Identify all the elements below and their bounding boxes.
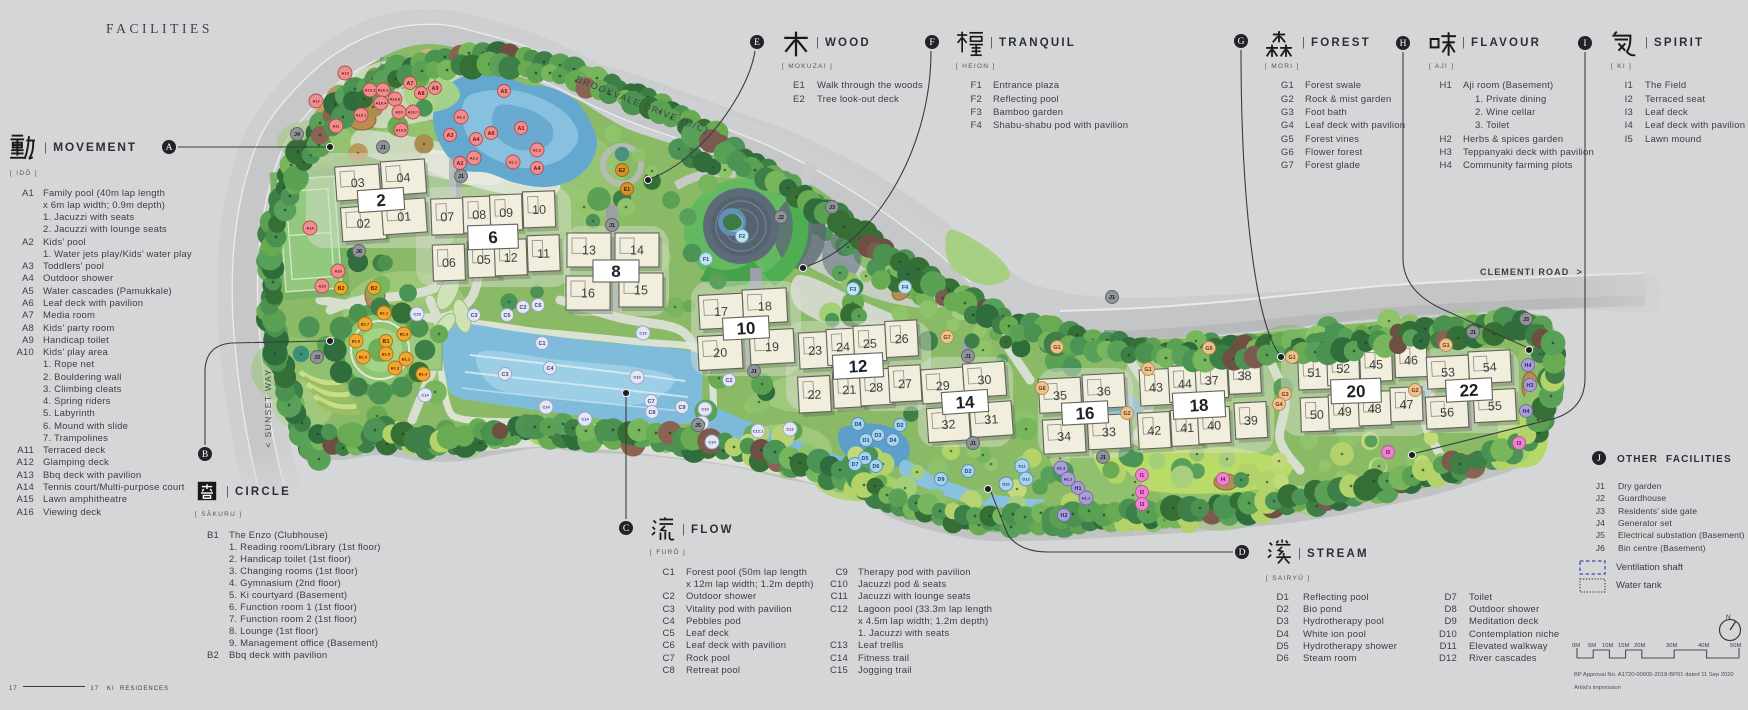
- svg-text:G7: G7: [943, 335, 950, 341]
- svg-text:A12: A12: [312, 98, 320, 103]
- svg-text:18: 18: [1189, 396, 1209, 416]
- svg-text:16: 16: [581, 287, 595, 301]
- svg-text:34: 34: [1057, 429, 1072, 444]
- svg-text:F1: F1: [703, 257, 709, 263]
- svg-text:B1: B1: [383, 339, 390, 345]
- svg-text:37: 37: [1204, 373, 1219, 388]
- svg-text:05: 05: [477, 253, 491, 267]
- svg-text:G1: G1: [1053, 345, 1060, 351]
- svg-text:C14: C14: [708, 439, 716, 444]
- svg-text:J1: J1: [751, 369, 757, 375]
- svg-text:C15: C15: [413, 311, 421, 316]
- svg-text:18: 18: [758, 299, 773, 314]
- svg-text:C4: C4: [547, 366, 554, 372]
- svg-text:44: 44: [1178, 377, 1193, 392]
- svg-text:03: 03: [350, 176, 365, 191]
- svg-text:25: 25: [863, 336, 878, 351]
- svg-text:H: H: [1400, 39, 1407, 49]
- svg-text:17: 17: [714, 304, 729, 319]
- svg-text:D11: D11: [1018, 463, 1026, 468]
- svg-text:48: 48: [1367, 402, 1381, 416]
- svg-text:A16: A16: [334, 268, 342, 273]
- svg-text:J3: J3: [1523, 317, 1529, 323]
- svg-text:A1: A1: [518, 126, 525, 132]
- svg-text:C14: C14: [421, 392, 429, 397]
- svg-text:C2: C2: [520, 305, 527, 311]
- svg-text:B1.5: B1.5: [382, 351, 391, 356]
- svg-text:22: 22: [1459, 381, 1479, 401]
- svg-text:J2: J2: [778, 215, 784, 221]
- svg-text:D12: D12: [1022, 476, 1030, 481]
- svg-text:C9: C9: [679, 405, 686, 411]
- svg-text:C1: C1: [539, 341, 546, 347]
- svg-text:C: C: [623, 524, 629, 534]
- svg-text:29: 29: [935, 379, 950, 394]
- svg-text:A6: A6: [488, 131, 495, 137]
- svg-text:A8: A8: [418, 91, 425, 97]
- svg-text:C10: C10: [701, 406, 709, 411]
- svg-text:J1: J1: [1470, 330, 1476, 336]
- svg-text:B1.2: B1.2: [402, 356, 411, 361]
- svg-text:J1: J1: [965, 354, 971, 360]
- svg-text:H1.3: H1.3: [1057, 465, 1066, 470]
- svg-text:E: E: [754, 38, 760, 48]
- svg-text:H1.2: H1.2: [1064, 476, 1073, 481]
- svg-text:2: 2: [376, 191, 387, 211]
- svg-text:D4: D4: [890, 438, 897, 444]
- svg-text:A10.6: A10.6: [390, 96, 401, 101]
- svg-text:A2: A2: [457, 161, 464, 167]
- svg-text:42: 42: [1147, 424, 1162, 439]
- svg-text:J5: J5: [695, 423, 701, 429]
- svg-text:30: 30: [977, 373, 992, 388]
- svg-text:D8: D8: [855, 422, 862, 428]
- svg-text:D2: D2: [965, 469, 972, 475]
- svg-text:07: 07: [440, 210, 454, 224]
- svg-text:D3: D3: [875, 433, 882, 439]
- svg-text:E2: E2: [619, 168, 626, 174]
- svg-text:I3: I3: [1140, 502, 1145, 508]
- svg-text:G1: G1: [1144, 367, 1151, 373]
- svg-text:D10: D10: [1002, 481, 1010, 486]
- svg-text:C3: C3: [471, 313, 478, 319]
- svg-text:B1.6: B1.6: [352, 338, 361, 343]
- svg-text:C12.1: C12.1: [753, 428, 764, 433]
- svg-text:A9: A9: [432, 86, 439, 92]
- svg-text:G2: G2: [1123, 411, 1130, 417]
- svg-text:8: 8: [611, 262, 620, 281]
- svg-text:22: 22: [807, 387, 822, 402]
- svg-text:32: 32: [941, 417, 956, 432]
- svg-text:39: 39: [1244, 413, 1259, 428]
- svg-text:H1.1: H1.1: [1082, 495, 1091, 500]
- svg-text:C13: C13: [639, 330, 647, 335]
- svg-text:10: 10: [532, 203, 546, 217]
- svg-text:C6: C6: [535, 303, 542, 309]
- svg-text:C7: C7: [648, 399, 655, 405]
- svg-text:A2.1: A2.1: [470, 155, 479, 160]
- svg-text:B1.3: B1.3: [391, 365, 400, 370]
- svg-text:A13: A13: [341, 70, 349, 75]
- svg-text:C8: C8: [649, 410, 656, 416]
- svg-text:G2: G2: [1411, 388, 1418, 394]
- svg-text:04: 04: [396, 170, 411, 185]
- svg-text:J3: J3: [829, 205, 835, 211]
- svg-text:D1: D1: [863, 438, 870, 444]
- svg-text:C14: C14: [542, 404, 550, 409]
- svg-text:A4: A4: [473, 137, 480, 143]
- svg-text:12: 12: [848, 357, 868, 377]
- svg-text:6: 6: [488, 228, 498, 247]
- svg-text:A15: A15: [318, 283, 326, 288]
- svg-text:D5: D5: [862, 456, 869, 462]
- svg-text:D7: D7: [852, 462, 859, 468]
- svg-text:A10.2: A10.2: [365, 87, 376, 92]
- svg-text:36: 36: [1097, 384, 1112, 399]
- svg-text:02: 02: [356, 216, 371, 231]
- svg-text:D9: D9: [938, 477, 945, 483]
- svg-text:A10: A10: [395, 109, 403, 114]
- svg-text:B: B: [202, 450, 208, 460]
- svg-text:A10.1: A10.1: [356, 112, 367, 117]
- svg-text:A: A: [166, 143, 173, 153]
- svg-text:B2: B2: [338, 286, 345, 292]
- svg-text:01: 01: [397, 209, 412, 224]
- svg-text:52: 52: [1336, 362, 1350, 376]
- svg-text:06: 06: [442, 256, 456, 270]
- svg-text:J3: J3: [314, 355, 320, 361]
- svg-text:F: F: [929, 38, 934, 48]
- svg-text:23: 23: [808, 343, 823, 358]
- svg-text:50: 50: [1310, 408, 1324, 422]
- svg-text:A10.4: A10.4: [376, 100, 387, 105]
- svg-text:G4: G4: [1275, 402, 1282, 408]
- svg-text:B1.4: B1.4: [419, 371, 428, 376]
- svg-text:G: G: [1238, 37, 1245, 47]
- svg-text:N: N: [1726, 614, 1731, 621]
- svg-text:G3: G3: [1281, 392, 1288, 398]
- svg-text:I: I: [1583, 39, 1586, 49]
- svg-text:C12: C12: [786, 426, 794, 431]
- svg-text:H4: H4: [1525, 363, 1532, 369]
- svg-text:11: 11: [537, 247, 551, 261]
- svg-text:31: 31: [984, 412, 999, 427]
- svg-text:F4: F4: [902, 285, 908, 291]
- svg-text:G1: G1: [1442, 343, 1449, 349]
- svg-text:A5: A5: [501, 89, 508, 95]
- svg-text:16: 16: [1075, 404, 1095, 424]
- svg-text:J4: J4: [294, 132, 300, 138]
- svg-text:35: 35: [1053, 388, 1068, 403]
- svg-text:< SUNSET WAY: < SUNSET WAY: [263, 368, 273, 447]
- svg-text:45: 45: [1369, 358, 1383, 372]
- svg-text:H2: H2: [1061, 513, 1068, 519]
- svg-text:C14: C14: [581, 416, 589, 421]
- svg-text:A3: A3: [447, 133, 454, 139]
- svg-text:E1: E1: [624, 187, 631, 193]
- svg-text:C10: C10: [633, 374, 641, 379]
- svg-text:D6: D6: [873, 464, 880, 470]
- svg-text:C2: C2: [726, 378, 733, 384]
- svg-text:15: 15: [634, 284, 648, 298]
- svg-text:56: 56: [1440, 405, 1455, 420]
- svg-text:D2: D2: [897, 423, 904, 429]
- svg-text:21: 21: [842, 383, 857, 398]
- svg-text:J1: J1: [458, 174, 464, 180]
- svg-text:C3: C3: [502, 372, 509, 378]
- svg-text:I5: I5: [1386, 450, 1391, 456]
- svg-text:A1.2: A1.2: [533, 147, 542, 152]
- svg-text:A14: A14: [306, 225, 314, 230]
- svg-text:43: 43: [1149, 380, 1164, 395]
- svg-text:J6: J6: [356, 249, 362, 255]
- svg-text:14: 14: [630, 244, 644, 258]
- svg-text:I1: I1: [1140, 473, 1145, 479]
- svg-text:55: 55: [1488, 399, 1503, 414]
- svg-text:J1: J1: [609, 223, 615, 229]
- svg-text:H3: H3: [1527, 383, 1534, 389]
- svg-text:B1.7: B1.7: [361, 321, 370, 326]
- svg-text:I3: I3: [1517, 441, 1522, 447]
- svg-text:A10.7: A10.7: [408, 109, 419, 114]
- svg-text:H4: H4: [1523, 409, 1530, 415]
- svg-text:I2: I2: [1140, 490, 1145, 496]
- svg-text:24: 24: [836, 340, 851, 355]
- svg-text:54: 54: [1483, 360, 1498, 375]
- svg-text:14: 14: [955, 392, 976, 412]
- svg-text:33: 33: [1102, 425, 1117, 440]
- svg-text:B1.1: B1.1: [380, 310, 389, 315]
- svg-text:51: 51: [1307, 366, 1321, 380]
- svg-text:28: 28: [869, 380, 884, 395]
- svg-text:J1: J1: [380, 145, 386, 151]
- svg-text:B1.8: B1.8: [400, 331, 409, 336]
- svg-text:I4: I4: [1221, 477, 1226, 483]
- svg-text:G1: G1: [1288, 355, 1295, 361]
- svg-text:A7: A7: [407, 81, 414, 87]
- svg-text:53: 53: [1441, 365, 1456, 380]
- svg-text:38: 38: [1237, 369, 1252, 384]
- svg-text:A10.3: A10.3: [378, 87, 389, 92]
- svg-text:46: 46: [1404, 353, 1418, 367]
- svg-text:J1: J1: [1109, 295, 1115, 301]
- svg-text:G5: G5: [1205, 346, 1212, 352]
- svg-text:20: 20: [1346, 382, 1366, 402]
- svg-text:B2: B2: [371, 286, 378, 292]
- svg-text:40: 40: [1207, 418, 1222, 433]
- svg-text:A1.1: A1.1: [509, 159, 518, 164]
- svg-text:A1.2: A1.2: [457, 114, 466, 119]
- svg-text:20: 20: [713, 346, 728, 361]
- svg-text:C5: C5: [504, 313, 511, 319]
- svg-text:49: 49: [1338, 405, 1352, 419]
- svg-text:B1.9: B1.9: [359, 354, 368, 359]
- svg-text:13: 13: [582, 244, 596, 258]
- svg-text:H1: H1: [1075, 486, 1082, 492]
- svg-text:J: J: [1597, 454, 1601, 464]
- svg-text:12: 12: [504, 251, 518, 265]
- svg-text:A11: A11: [332, 123, 340, 128]
- svg-text:27: 27: [898, 377, 913, 392]
- svg-text:41: 41: [1180, 421, 1195, 436]
- svg-text:G6: G6: [1038, 386, 1045, 392]
- svg-text:10: 10: [736, 319, 756, 339]
- svg-text:J1: J1: [970, 441, 976, 447]
- svg-text:08: 08: [472, 208, 486, 222]
- svg-text:J1: J1: [1100, 455, 1106, 461]
- svg-text:F3: F3: [850, 287, 856, 293]
- svg-text:D: D: [1239, 548, 1246, 558]
- svg-text:26: 26: [894, 332, 909, 347]
- svg-text:19: 19: [765, 340, 780, 355]
- svg-text:A4: A4: [534, 166, 541, 172]
- svg-text:47: 47: [1399, 398, 1413, 412]
- svg-text:09: 09: [499, 206, 513, 220]
- svg-text:F2: F2: [739, 234, 745, 240]
- svg-text:A10.5: A10.5: [396, 127, 407, 132]
